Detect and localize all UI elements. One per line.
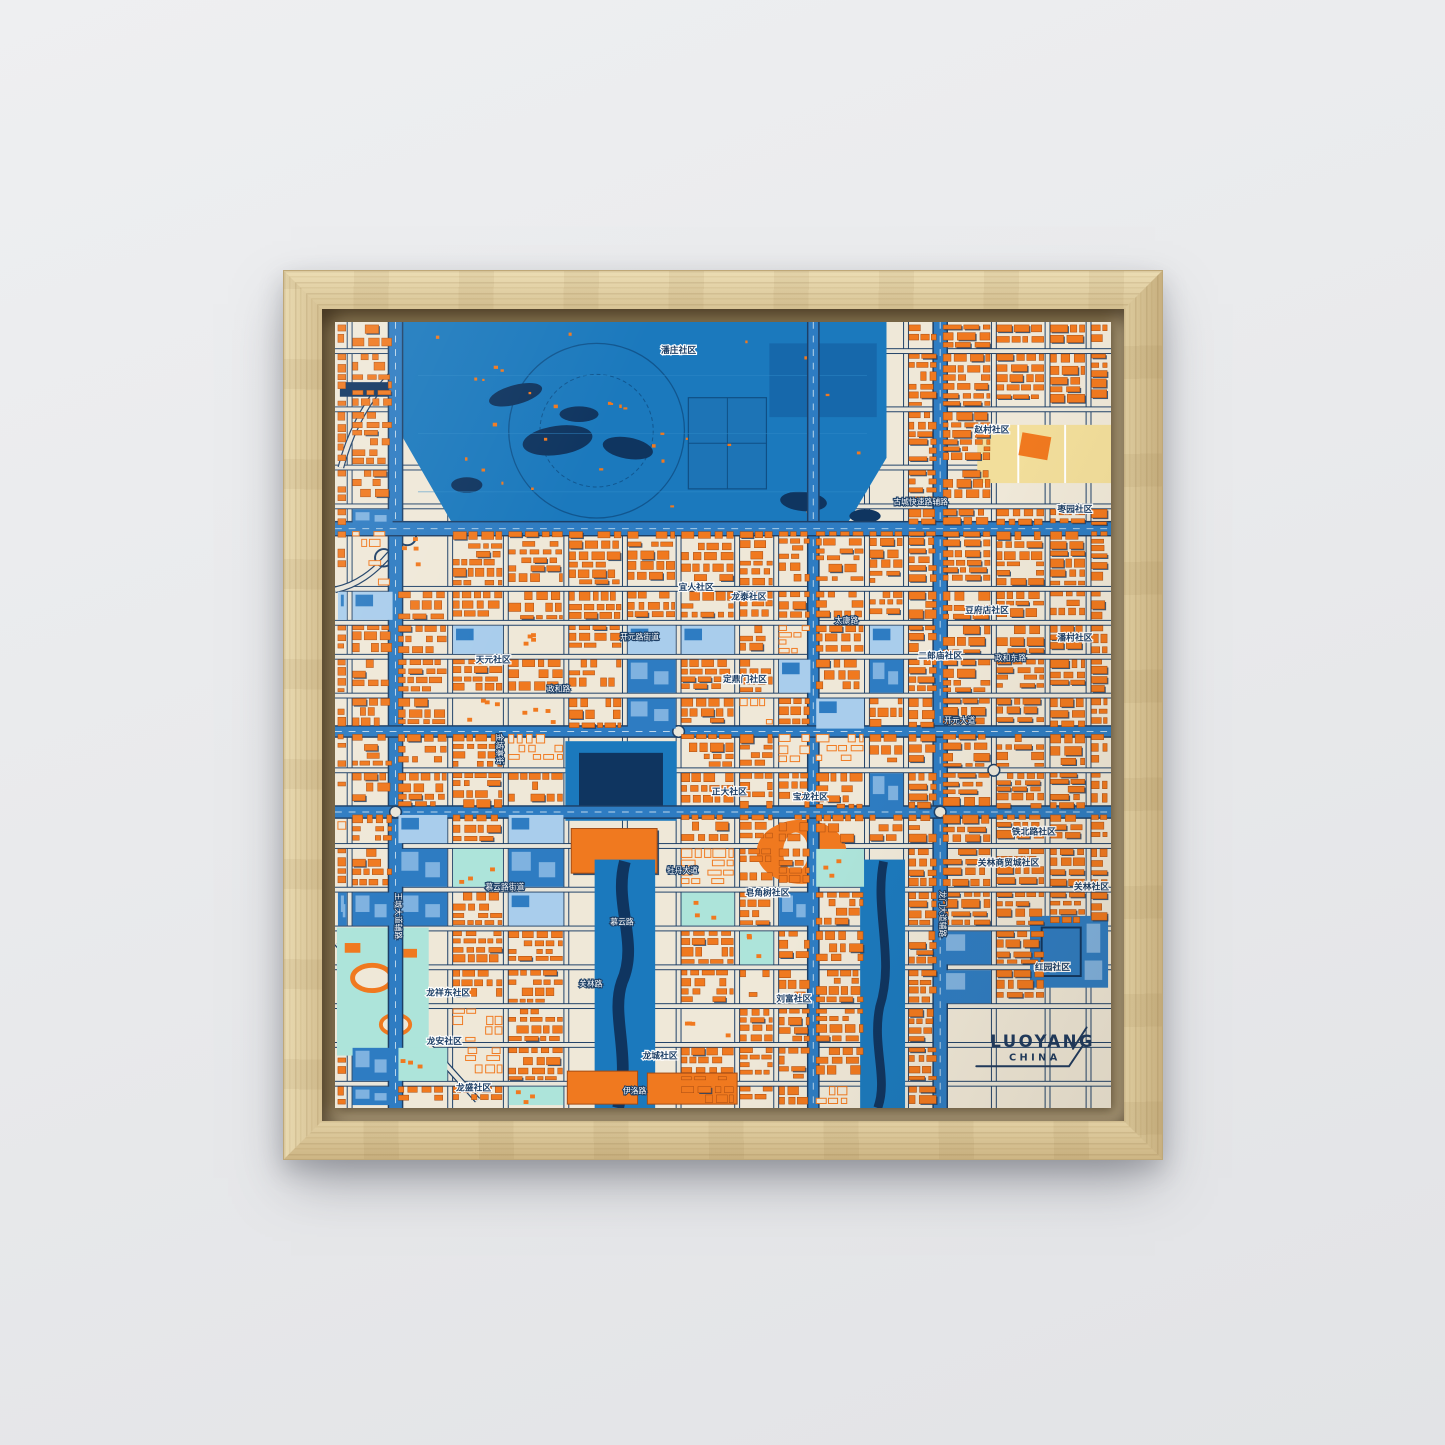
map-label: 宝龙社区 bbox=[793, 790, 828, 802]
map-label: 天元社区 bbox=[476, 654, 511, 666]
map-label: 太康路 bbox=[835, 615, 859, 625]
map-label: 政和东路 bbox=[995, 653, 1026, 663]
map-label: 龙祥东社区 bbox=[425, 986, 470, 998]
map-label: 伊洛路 bbox=[623, 1085, 647, 1095]
map-label: 皂角树社区 bbox=[745, 887, 789, 899]
map-label: 龙泰社区 bbox=[730, 591, 766, 603]
map-label: 正大社区 bbox=[712, 786, 747, 798]
map-label: 刘富社区 bbox=[776, 992, 811, 1004]
map-label: 政和路 bbox=[547, 684, 571, 694]
frame-wood-left bbox=[284, 271, 322, 1159]
luoyang-map-print: 潘庄社区赵村社区枣园社区古城快速路辅路宜人社区龙泰社区开元路街道太康路豆府店社区… bbox=[335, 322, 1111, 1108]
map-label: 宜人社区 bbox=[679, 581, 714, 593]
map-label: 开元大道 bbox=[944, 715, 975, 725]
map-label: 关林社区 bbox=[1074, 881, 1109, 893]
canvas-print: 潘庄社区赵村社区枣园社区古城快速路辅路宜人社区龙泰社区开元路街道太康路豆府店社区… bbox=[335, 322, 1111, 1108]
map-label: 定鼎门社区 bbox=[723, 673, 767, 685]
map-label: 龙盛社区 bbox=[455, 1082, 491, 1094]
map-label: 铁北路社区 bbox=[1012, 825, 1056, 837]
map-label: 龙门大道辅路 bbox=[938, 891, 948, 938]
map-label: 二郎庙社区 bbox=[918, 650, 962, 662]
map-label: 慕云路 bbox=[610, 917, 634, 927]
map-label: 王城大道辅路 bbox=[394, 893, 404, 940]
poster-subtitle: CHINA bbox=[1009, 1052, 1061, 1063]
frame-wood-top bbox=[284, 271, 1162, 309]
frame-wood-right bbox=[1124, 271, 1162, 1159]
map-label: 潘村社区 bbox=[1057, 631, 1092, 643]
frame-wood-bottom bbox=[284, 1121, 1162, 1159]
map-label: 金城寨街 bbox=[495, 733, 505, 764]
map-label: 牡丹大道 bbox=[667, 865, 698, 875]
picture-frame: 潘庄社区赵村社区枣园社区古城快速路辅路宜人社区龙泰社区开元路街道太康路豆府店社区… bbox=[283, 270, 1163, 1160]
wall: 潘庄社区赵村社区枣园社区古城快速路辅路宜人社区龙泰社区开元路街道太康路豆府店社区… bbox=[0, 0, 1445, 1445]
map-label: 开元路街道 bbox=[620, 631, 659, 641]
map-label: 龙安社区 bbox=[426, 1035, 462, 1047]
map-label: 关林路 bbox=[579, 979, 603, 989]
poster-title: LUOYANG bbox=[990, 1032, 1095, 1051]
map-label: 慕云路街道 bbox=[485, 882, 524, 892]
map-label: 赵村社区 bbox=[973, 424, 1009, 436]
map-label: 龙城社区 bbox=[641, 1050, 677, 1062]
map-label: 关林商贸城社区 bbox=[978, 856, 1040, 868]
map-label: 豆府店社区 bbox=[965, 604, 1009, 616]
frame-inner-shadow: 潘庄社区赵村社区枣园社区古城快速路辅路宜人社区龙泰社区开元路街道太康路豆府店社区… bbox=[322, 309, 1124, 1121]
map-label: 红园社区 bbox=[1035, 961, 1070, 973]
map-label: 枣园社区 bbox=[1056, 503, 1092, 515]
map-label: 古城快速路辅路 bbox=[893, 496, 948, 506]
map-label: 潘庄社区 bbox=[661, 344, 696, 356]
